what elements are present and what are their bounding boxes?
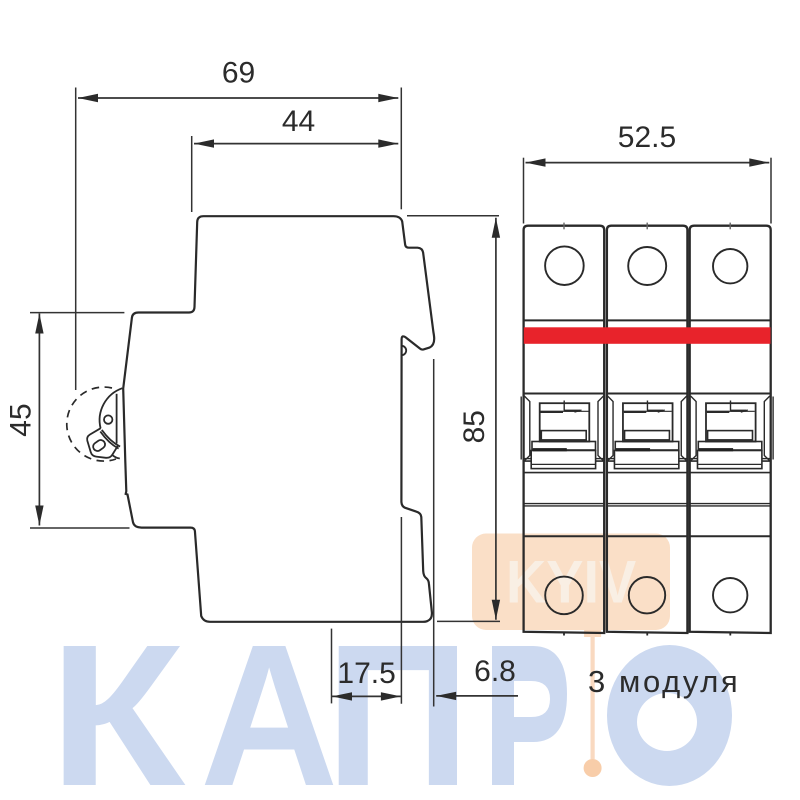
svg-text:17.5: 17.5 xyxy=(337,657,395,690)
svg-text:85: 85 xyxy=(458,410,491,443)
svg-text:А: А xyxy=(200,602,338,800)
svg-text:45: 45 xyxy=(4,403,37,436)
svg-text:52.5: 52.5 xyxy=(618,121,676,154)
svg-text:KYIV: KYIV xyxy=(506,550,637,616)
svg-text:44: 44 xyxy=(282,105,315,138)
svg-text:3 модуля: 3 модуля xyxy=(588,664,740,699)
svg-text:К: К xyxy=(49,603,186,800)
svg-text:69: 69 xyxy=(222,56,255,89)
svg-text:П: П xyxy=(325,602,470,800)
svg-text:6.8: 6.8 xyxy=(474,655,516,688)
